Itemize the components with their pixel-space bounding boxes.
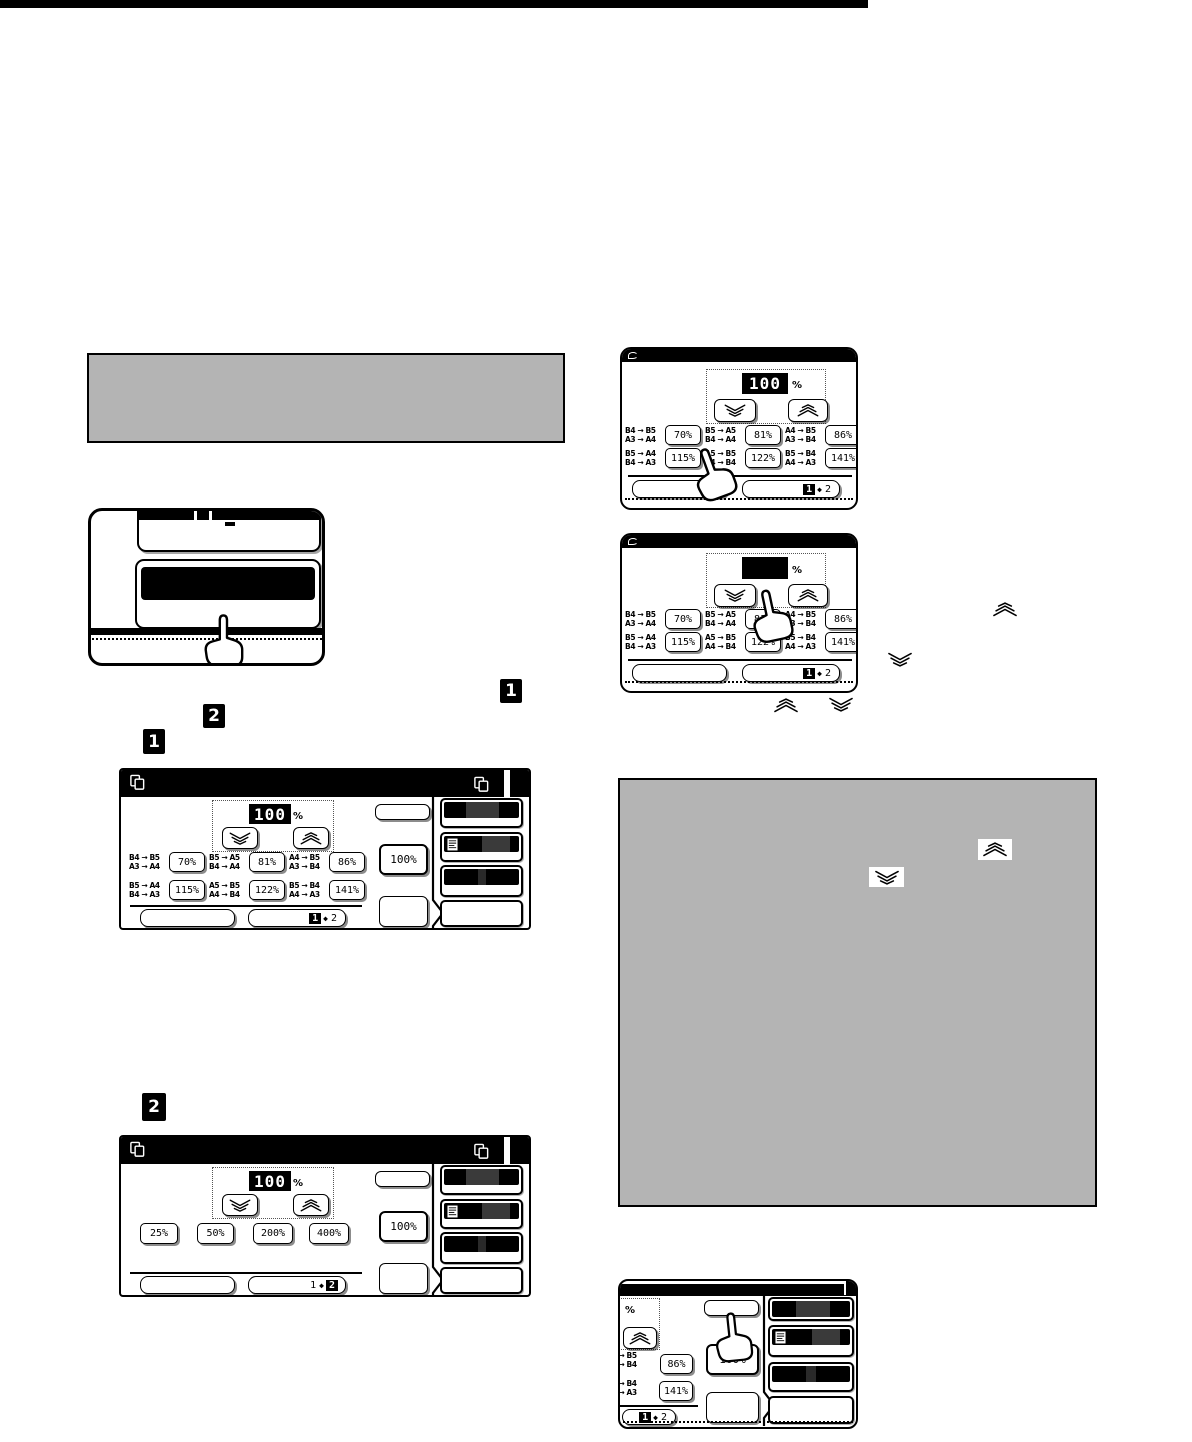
menu-highlight-bar: [772, 1329, 850, 1345]
preset-size-label: A4 → B5A3 → B4: [289, 853, 329, 871]
preset-ratio-button[interactable]: 200%: [253, 1223, 293, 1244]
preset-ratio-button[interactable]: 81%: [249, 852, 285, 872]
sidebar-menu-button[interactable]: [440, 1232, 523, 1264]
sidebar-menu-button[interactable]: [768, 1325, 854, 1357]
chevron-up-icon: [978, 839, 1012, 860]
preset-size-label: B5 → B4A4 → A3: [785, 449, 825, 467]
sidebar-blank-button[interactable]: [440, 1267, 523, 1294]
document-lines-icon: [775, 1331, 786, 1344]
page-toggle-button[interactable]: 1◆2: [742, 480, 840, 498]
screen-bottom-bezel: [625, 498, 853, 500]
preset-ratio-button[interactable]: 115%: [665, 632, 701, 652]
menu-highlight-bar: [444, 1203, 519, 1219]
step-marker-2: 2: [203, 704, 225, 728]
percent-label: %: [293, 1178, 303, 1189]
preset-size-label: B5 → A4B4 → A3: [129, 881, 169, 899]
preset-size-label: A4 → B5A3 → B4: [785, 426, 825, 444]
copy-ratio-screen-page2: 100 % 25% 50% 200% 400% 1◆2 100%: [119, 1135, 531, 1297]
zoom-function-button[interactable]: [375, 804, 430, 820]
preset-size-label: A5 → B5A4 → B4: [209, 881, 249, 899]
chevron-up-icon: [991, 601, 1019, 622]
page-toggle-button[interactable]: 1◆2: [248, 909, 346, 927]
sidebar-menu-button[interactable]: [768, 1297, 854, 1321]
chevron-up-icon: [795, 588, 821, 603]
chevron-up-icon: [772, 697, 800, 718]
screen-corner-icon: [628, 352, 638, 359]
pointing-hand-cursor: [199, 611, 247, 666]
ratio-decrease-button[interactable]: [714, 399, 756, 422]
page-top-rule: [0, 0, 868, 8]
page-toggle-button[interactable]: 1◆2: [742, 664, 840, 682]
blank-lower-button[interactable]: [379, 1263, 428, 1294]
preset-size-label: A5 → B5A4 → B4: [705, 633, 745, 651]
chevron-up-icon: [298, 831, 324, 846]
screen-titlebar: [622, 349, 856, 362]
ratio-increase-button[interactable]: [788, 399, 828, 422]
preset-ratio-button[interactable]: 81%: [745, 425, 781, 445]
sidebar-menu-button[interactable]: [440, 798, 523, 828]
pointing-hand-cursor: [707, 1308, 758, 1367]
menu-highlight-bar: [444, 1236, 519, 1252]
ratio-decrease-button[interactable]: [222, 827, 258, 849]
full-size-button[interactable]: 100%: [379, 1211, 428, 1242]
menu-highlight-bar: [772, 1301, 850, 1317]
ratio-increase-button[interactable]: [623, 1327, 657, 1349]
preset-ratio-button[interactable]: 50%: [197, 1223, 234, 1244]
ratio-increase-button[interactable]: [788, 584, 828, 607]
copy-pages-icon: [473, 776, 490, 793]
preset-ratio-button[interactable]: 86%: [825, 425, 858, 445]
blank-lower-button[interactable]: [706, 1392, 759, 1423]
sidebar-menu-button[interactable]: [440, 865, 523, 897]
screen-titlebar: [121, 1137, 529, 1164]
preset-ratio-button[interactable]: 70%: [169, 852, 205, 872]
display-status-bar: [139, 508, 319, 520]
sidebar-menu-button[interactable]: [440, 1199, 523, 1229]
chevron-down-icon: [227, 831, 253, 846]
preset-ratio-button[interactable]: 86%: [660, 1354, 693, 1374]
menu-highlight-bar: [444, 1169, 519, 1185]
chevron-up-icon: [298, 1198, 324, 1213]
percent-label: %: [792, 380, 802, 391]
preset-ratio-button[interactable]: 86%: [329, 852, 365, 872]
step-marker-1: 1: [500, 679, 522, 703]
operation-panel: [88, 508, 325, 666]
percent-label: %: [792, 565, 802, 576]
preset-ratio-button[interactable]: 400%: [309, 1223, 349, 1244]
preset-size-label: B4 → B5A3 → A4: [625, 610, 665, 628]
preset-ratio-button[interactable]: 70%: [665, 609, 701, 629]
sidebar-blank-button[interactable]: [768, 1396, 854, 1424]
preset-ratio-button[interactable]: 141%: [329, 880, 365, 900]
sidebar-menu-button[interactable]: [768, 1362, 854, 1392]
sidebar-menu-button[interactable]: [440, 832, 523, 862]
preset-ratio-button[interactable]: 70%: [665, 425, 701, 445]
document-lines-icon: [447, 1205, 458, 1218]
titlebar-divider: [504, 770, 510, 797]
blank-function-button[interactable]: [140, 1276, 235, 1294]
preset-ratio-button[interactable]: 122%: [249, 880, 285, 900]
preset-size-label: B5 → A4B4 → A3: [625, 449, 665, 467]
blank-function-button[interactable]: [140, 909, 235, 927]
copy-pages-icon: [129, 1141, 146, 1158]
sidebar-menu-button[interactable]: [440, 1165, 523, 1195]
copy-ratio-screen-page1: 100 % B4 → B5A3 → A4 70% B5 → A5B4 → A4 …: [119, 768, 531, 930]
screen-titlebar: [620, 1284, 856, 1296]
preset-ratio-button[interactable]: 115%: [169, 880, 205, 900]
preset-ratio-button[interactable]: 141%: [659, 1381, 693, 1401]
zoom-function-button[interactable]: [375, 1171, 430, 1187]
copy-ratio-value: 100: [742, 373, 788, 394]
chevron-up-icon: [795, 403, 821, 418]
preset-size-label: B4 → B5A3 → A4: [129, 853, 169, 871]
copy-pages-icon: [129, 774, 146, 791]
ratio-decrease-button[interactable]: [222, 1194, 258, 1216]
preset-ratio-button[interactable]: 122%: [745, 448, 781, 468]
menu-highlight-bar: [772, 1366, 850, 1382]
copy-ratio-value: 100: [249, 1171, 291, 1191]
note-box-right: [618, 778, 1097, 1207]
preset-size-label: B5 → A5B4 → A4: [705, 610, 745, 628]
blank-function-button[interactable]: [632, 664, 727, 682]
preset-ratio-button[interactable]: 25%: [140, 1223, 178, 1244]
percent-label: %: [625, 1305, 635, 1316]
preset-ratio-button[interactable]: 141%: [825, 632, 858, 652]
display-cursor-mark: [225, 522, 235, 526]
preset-size-label: B5 → A4B4 → A3: [625, 633, 665, 651]
screen-bottom-bezel: [625, 681, 853, 683]
chevron-down-icon: [827, 696, 855, 717]
ratio-increase-button[interactable]: [293, 1194, 329, 1216]
preset-size-label: B4 → B5A3 → A4: [625, 426, 665, 444]
preset-size-label: B5 → A5B4 → A4: [209, 853, 249, 871]
preset-size-label: B5 → B4A4 → A3: [289, 881, 329, 899]
preset-size-label: B5 → B4A4 → A3: [618, 1379, 646, 1397]
chevron-up-icon: [627, 1331, 653, 1346]
screen-titlebar: [622, 535, 856, 548]
chevron-down-icon: [869, 867, 904, 887]
full-size-button[interactable]: 100%: [379, 844, 428, 875]
preset-size-label: A4 → B5A3 → B4: [618, 1351, 646, 1369]
preset-ratio-button[interactable]: 141%: [825, 448, 858, 468]
chevron-down-icon: [227, 1198, 253, 1213]
copy-pages-icon: [473, 1143, 490, 1160]
copy-ratio-value: 100: [249, 804, 291, 824]
document-lines-icon: [447, 838, 458, 851]
step-marker-1: 1: [143, 729, 165, 754]
zoom-screen-ab-step1: 100 % B4 → B5A3 → A4 70% B5 → A5B4 → A4 …: [620, 347, 858, 510]
panel-display-window: [137, 508, 321, 552]
menu-highlight-bar: [444, 836, 519, 852]
highlighted-key[interactable]: [141, 567, 315, 600]
sidebar-blank-button[interactable]: [440, 900, 523, 927]
screen-titlebar: [121, 770, 529, 797]
screen-bottom-bezel: [623, 1421, 853, 1423]
note-box-top: [87, 353, 565, 443]
copy-ratio-value-blank: [742, 557, 788, 579]
copy-ratio-screen-partial: % A4 → B5A3 → B4 86% B5 → B4A4 → A3 141%…: [618, 1279, 858, 1429]
menu-highlight-bar: [444, 802, 519, 818]
chevron-down-icon: [722, 403, 748, 418]
percent-label: %: [293, 811, 303, 822]
titlebar-corner-square: [844, 1281, 858, 1295]
step-marker-2: 2: [142, 1093, 166, 1121]
titlebar-divider: [504, 1137, 510, 1164]
page-toggle-button[interactable]: 1◆2: [248, 1276, 346, 1294]
preset-ratio-button[interactable]: 86%: [825, 609, 858, 629]
chevron-down-icon: [886, 651, 914, 672]
blank-lower-button[interactable]: [379, 896, 428, 927]
screen-corner-icon: [628, 538, 638, 545]
ratio-increase-button[interactable]: [293, 827, 329, 849]
menu-highlight-bar: [444, 869, 519, 885]
zoom-screen-ab-step2: % B4 → B5A3 → A4 70% B5 → A5B4 → A4 81% …: [620, 533, 858, 693]
